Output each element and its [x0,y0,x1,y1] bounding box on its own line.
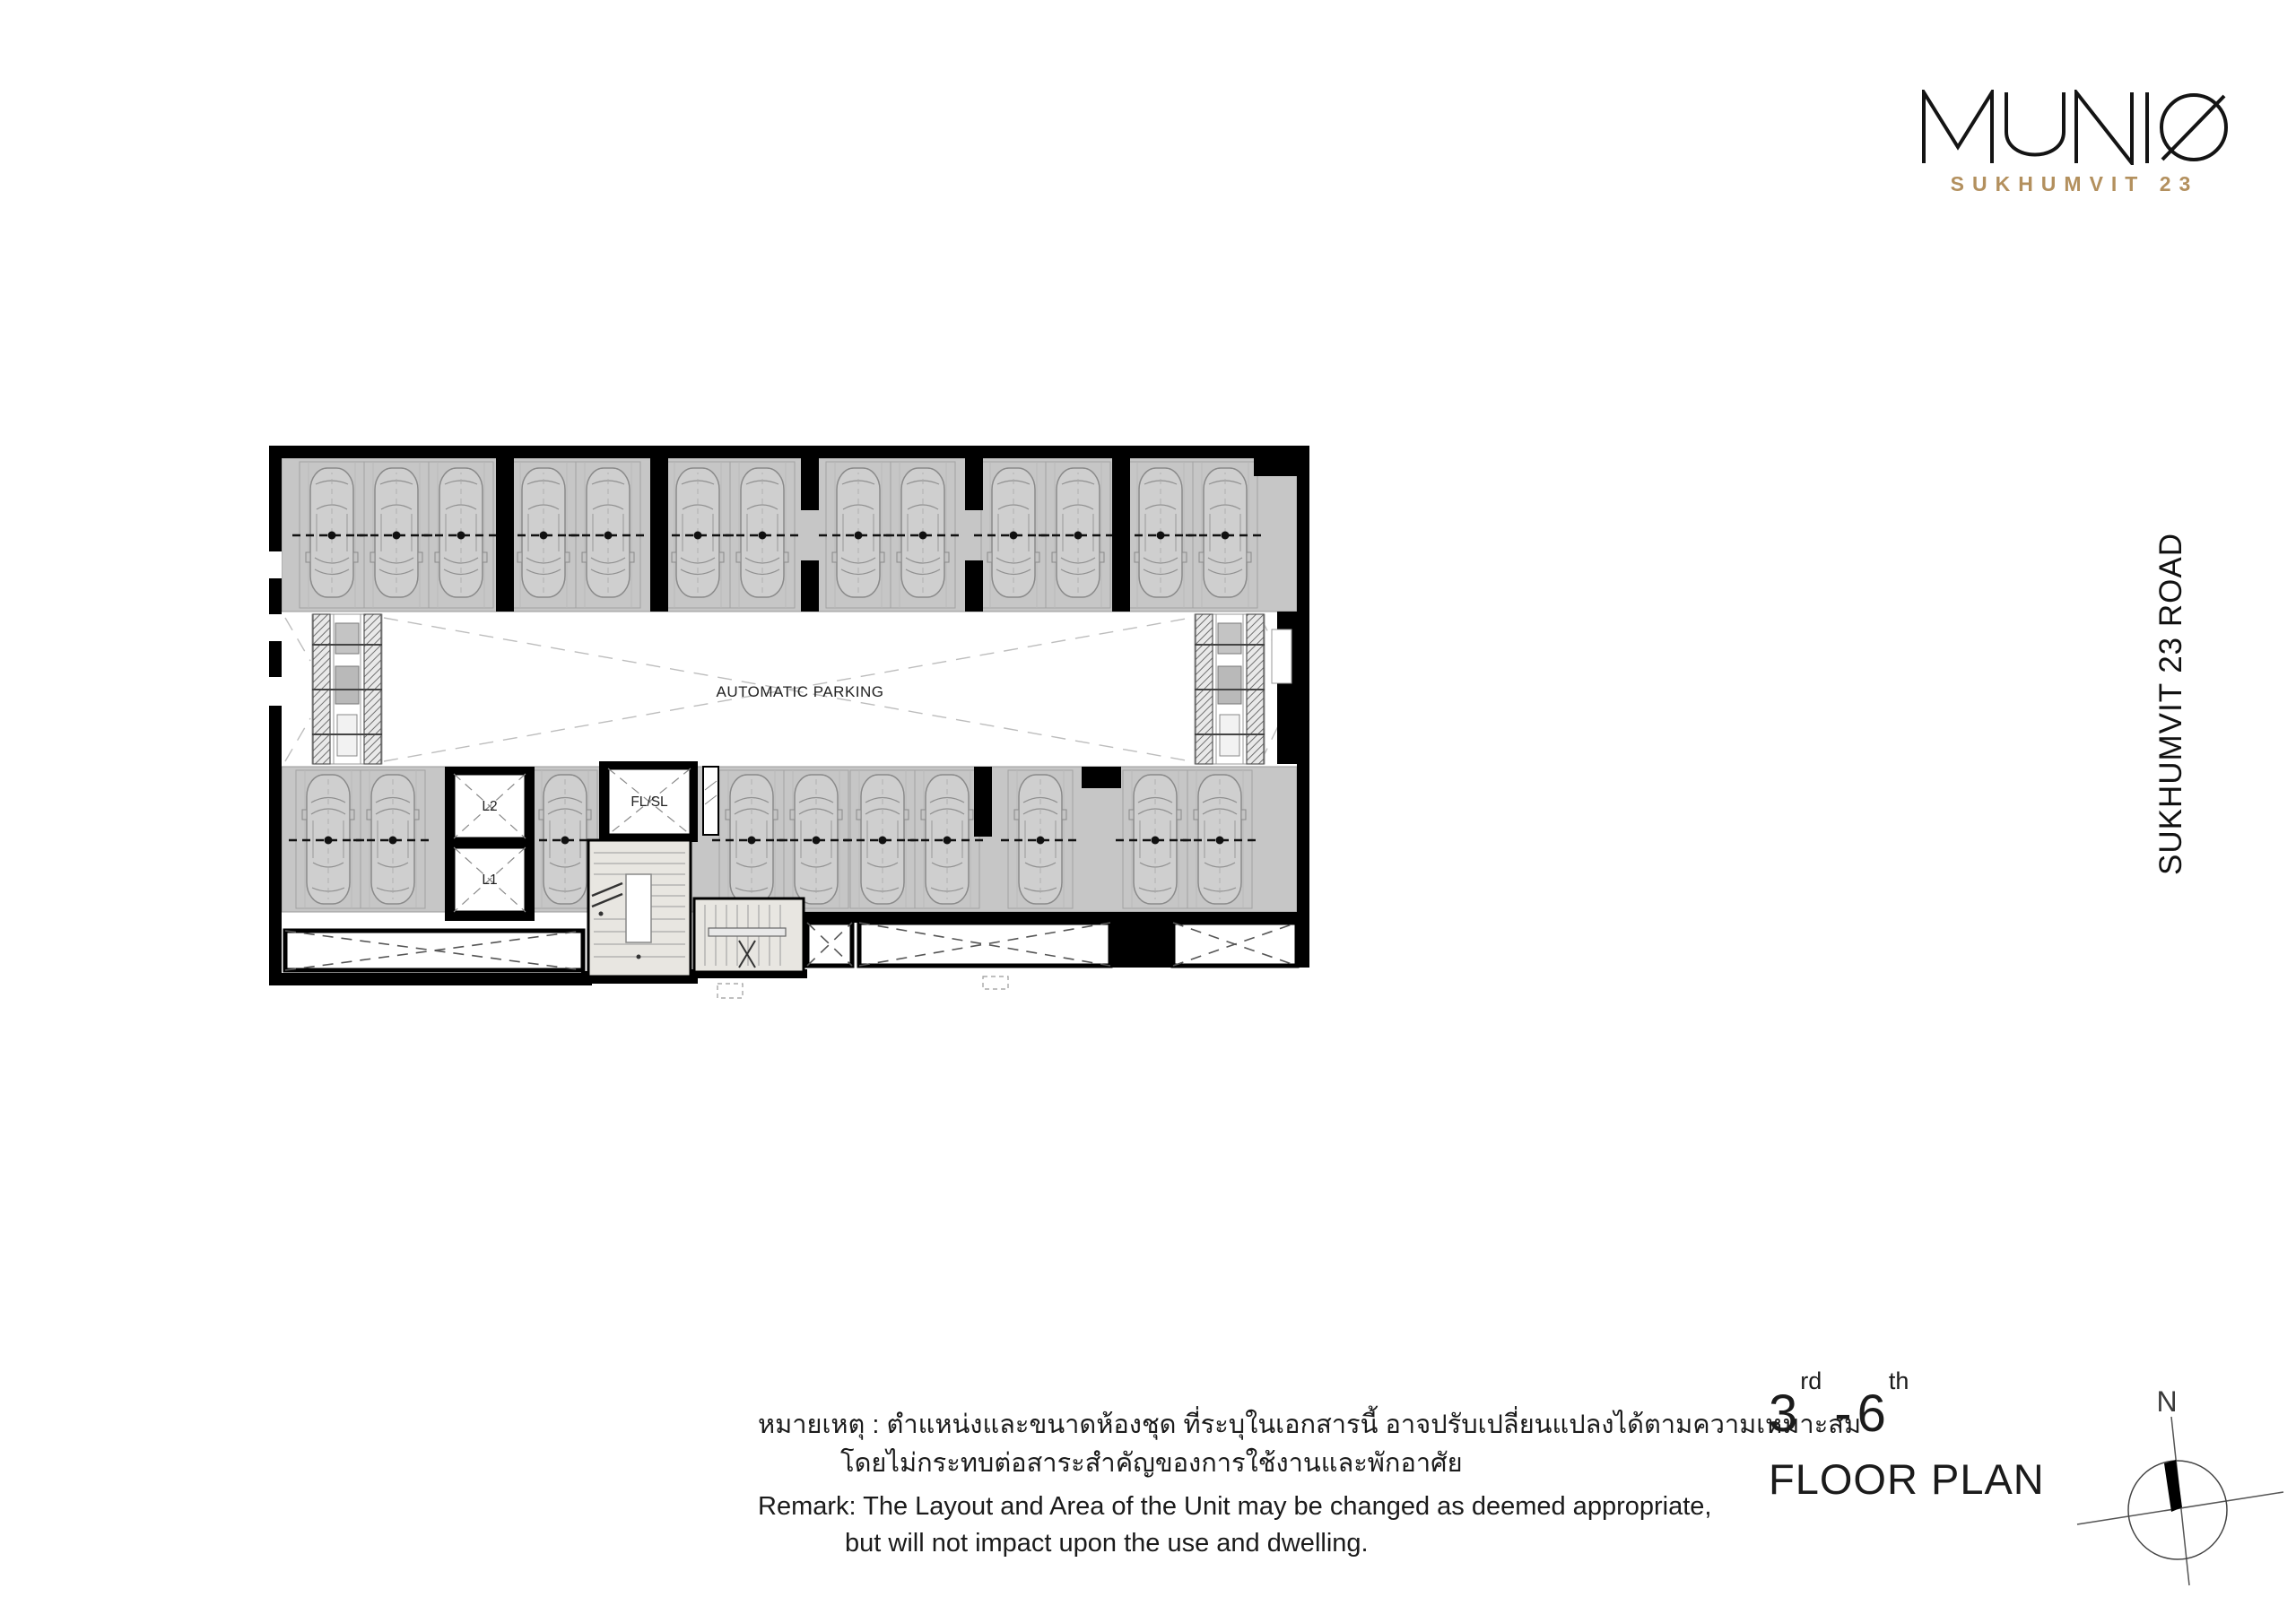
automatic-parking-zone: AUTOMATIC PARKING [285,618,1293,761]
road-label: SUKHUMVIT 23 ROAD [2153,507,2193,901]
elevator-l1-label: L1 [482,872,497,888]
floor-range-separator: - [1834,1384,1851,1443]
floor-plan-label: FLOOR PLAN [1769,1454,2045,1504]
brand-subtitle: SUKHUMVIT 23 [1919,172,2230,196]
north-arrow-icon: N [2063,1370,2287,1594]
floor-title: 3rd-6th FLOOR PLAN [1769,1388,2045,1504]
remark-english-line2: but will not impact upon the use and dwe… [758,1525,1711,1562]
floor-plan-drawing: AUTOMATIC PARKING [269,446,1309,1006]
floor-range-start: 3 [1769,1384,1797,1443]
floor-range-end: 6 [1857,1384,1886,1443]
remark-english: Remark: The Layout and Area of the Unit … [758,1488,1711,1562]
floor-range: 3rd-6th [1769,1388,2045,1440]
elevator-l2-label: L2 [482,799,497,814]
floor-plan-page: SUKHUMVIT 23 SUKHUMVIT 23 ROAD [0,0,2296,1623]
remark-thai-line1: หมายเหตุ : ตำแหน่งและขนาดห้องชุด ที่ระบุ… [758,1406,1861,1445]
automatic-parking-label: AUTOMATIC PARKING [716,683,883,700]
elevator-flsl-label: FL/SL [631,794,668,810]
door-swings [717,976,1008,998]
stair-core-secondary [694,898,804,972]
remark-thai-line2: โดยไม่กระทบต่อสาระสำคัญของการใช้งานและพั… [758,1445,1861,1483]
compass-north-label: N [2156,1385,2177,1418]
remark-thai: หมายเหตุ : ตำแหน่งและขนาดห้องชุด ที่ระบุ… [758,1406,1861,1483]
compass: N [2063,1370,2287,1594]
brand-logo: SUKHUMVIT 23 [1919,90,2230,196]
stair-core-main [588,840,691,976]
muniq-logo-icon [1919,90,2230,165]
floor-range-start-suffix: rd [1800,1367,1822,1394]
remark-english-line1: Remark: The Layout and Area of the Unit … [758,1488,1711,1525]
floor-range-end-suffix: th [1889,1367,1909,1394]
